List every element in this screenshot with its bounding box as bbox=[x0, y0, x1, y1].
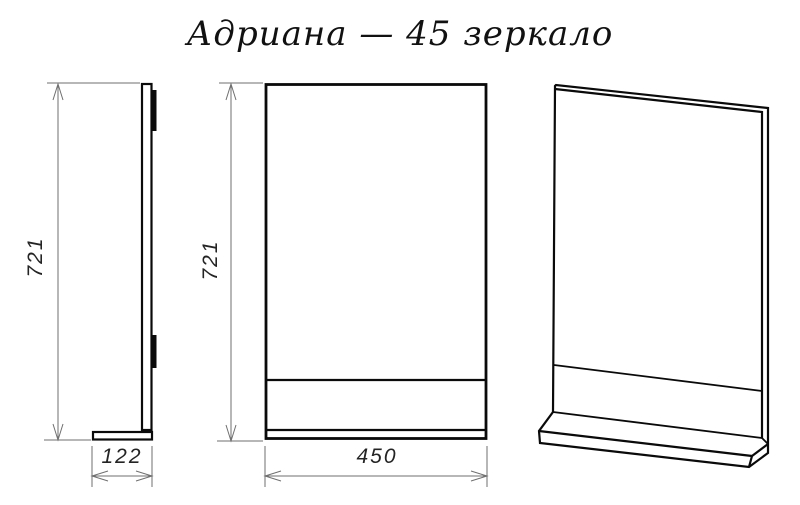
dimension-label-side-height: 721 bbox=[24, 236, 48, 277]
mirror-panel-side bbox=[142, 84, 152, 430]
panel-outer-outline bbox=[553, 85, 768, 444]
technical-drawing-sheet: Адриана — 45 зеркало bbox=[0, 0, 800, 505]
side-view bbox=[93, 84, 157, 440]
mirror-panel-front bbox=[266, 85, 486, 439]
shelf-front-top-edge-3d bbox=[539, 431, 752, 467]
shelf-side bbox=[93, 432, 152, 440]
wall-bracket-bottom bbox=[152, 335, 157, 368]
perspective-view bbox=[539, 85, 768, 467]
front-view bbox=[266, 85, 486, 439]
drawing-views bbox=[0, 0, 800, 505]
panel-front-face-outline bbox=[555, 89, 762, 438]
panel-bottom-edge-3d bbox=[553, 412, 762, 438]
dimension-label-front-height: 721 bbox=[199, 239, 223, 280]
wall-bracket-top bbox=[152, 90, 157, 131]
dimension-label-depth: 122 bbox=[101, 445, 142, 469]
shelf-outline-3d bbox=[539, 412, 768, 467]
shelf-back-top-edge-3d bbox=[554, 365, 762, 391]
dimension-label-width: 450 bbox=[356, 445, 397, 469]
